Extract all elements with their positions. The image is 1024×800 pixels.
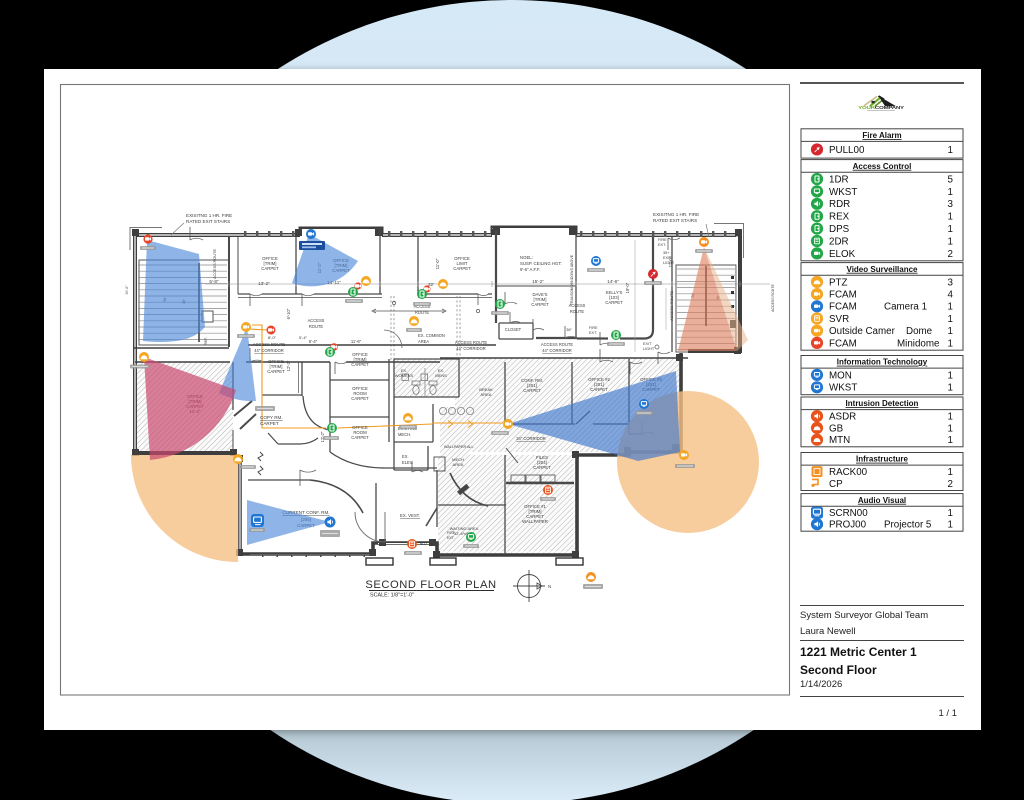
svg-text:5: 5 bbox=[948, 174, 954, 185]
svg-text:1: 1 bbox=[948, 302, 953, 313]
svg-text:ASDR: ASDR bbox=[829, 412, 856, 423]
svg-text:RACK00: RACK00 bbox=[829, 467, 868, 478]
svg-text:2: 2 bbox=[948, 249, 953, 260]
svg-text:1: 1 bbox=[948, 370, 953, 381]
svg-text:Dome: Dome bbox=[906, 326, 933, 337]
svg-text:PROJ00: PROJ00 bbox=[829, 520, 867, 531]
svg-text:Audio Visual: Audio Visual bbox=[858, 496, 906, 505]
svg-text:ELOK: ELOK bbox=[829, 249, 856, 260]
svg-text:MON: MON bbox=[829, 370, 852, 381]
svg-text:3: 3 bbox=[948, 277, 954, 288]
svg-text:Infrastructure: Infrastructure bbox=[856, 455, 909, 464]
svg-text:SCRN00: SCRN00 bbox=[829, 508, 868, 519]
svg-text:WKST: WKST bbox=[829, 383, 857, 394]
svg-text:1: 1 bbox=[948, 314, 953, 325]
svg-text:Projector 5: Projector 5 bbox=[884, 520, 932, 531]
svg-text:4: 4 bbox=[948, 290, 954, 301]
svg-text:WKST: WKST bbox=[829, 187, 857, 198]
svg-text:GB: GB bbox=[829, 423, 844, 434]
svg-text:1: 1 bbox=[948, 338, 953, 349]
svg-text:Outside Camer: Outside Camer bbox=[829, 326, 896, 337]
svg-text:1: 1 bbox=[948, 520, 953, 531]
svg-text:Access Control: Access Control bbox=[853, 162, 912, 171]
svg-text:1: 1 bbox=[948, 423, 953, 434]
svg-text:PTZ: PTZ bbox=[829, 277, 848, 288]
svg-text:2: 2 bbox=[948, 479, 953, 490]
svg-text:1: 1 bbox=[948, 187, 953, 198]
svg-text:Minidome: Minidome bbox=[897, 338, 940, 349]
svg-text:RDR: RDR bbox=[829, 199, 850, 210]
svg-text:1: 1 bbox=[948, 326, 953, 337]
svg-text:DPS: DPS bbox=[829, 224, 850, 235]
svg-text:1: 1 bbox=[948, 467, 953, 478]
svg-text:Intrusion Detection: Intrusion Detection bbox=[846, 399, 919, 408]
svg-text:1: 1 bbox=[948, 412, 953, 423]
svg-text:FCAM: FCAM bbox=[829, 290, 857, 301]
svg-text:REX: REX bbox=[829, 212, 850, 223]
svg-text:MTN: MTN bbox=[829, 435, 850, 446]
svg-text:FCAM: FCAM bbox=[829, 338, 857, 349]
svg-text:1DR: 1DR bbox=[829, 174, 849, 185]
svg-text:Information Technology: Information Technology bbox=[837, 358, 928, 367]
svg-text:Camera 1: Camera 1 bbox=[884, 302, 927, 313]
svg-text:1: 1 bbox=[948, 435, 953, 446]
svg-text:1: 1 bbox=[948, 212, 953, 223]
svg-text:1: 1 bbox=[948, 236, 953, 247]
svg-text:1: 1 bbox=[948, 383, 953, 394]
svg-text:1: 1 bbox=[948, 145, 953, 156]
svg-text:SVR: SVR bbox=[829, 314, 849, 325]
svg-text:PULL00: PULL00 bbox=[829, 145, 865, 156]
svg-text:2DR: 2DR bbox=[829, 236, 849, 247]
svg-text:1: 1 bbox=[948, 508, 953, 519]
svg-text:3: 3 bbox=[948, 199, 954, 210]
svg-text:FCAM: FCAM bbox=[829, 302, 857, 313]
svg-text:CP: CP bbox=[829, 479, 843, 490]
svg-text:Video Surveillance: Video Surveillance bbox=[847, 265, 919, 274]
svg-text:1: 1 bbox=[948, 224, 953, 235]
svg-text:Fire Alarm: Fire Alarm bbox=[862, 131, 901, 140]
